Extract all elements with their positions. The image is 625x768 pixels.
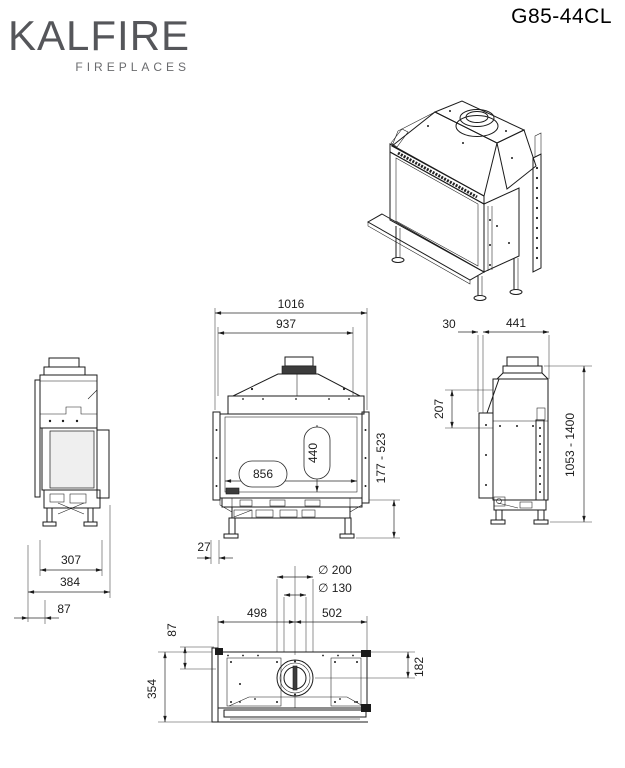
- technical-drawing: 307 384 87 1016 937: [0, 0, 625, 768]
- dim-body-depth: 441: [506, 316, 526, 330]
- dim-glass-height: 440: [306, 443, 320, 463]
- dim-frame-gap: 30: [442, 317, 456, 331]
- dim-overall-height: 1053 - 1400: [563, 413, 577, 477]
- dim-total-depth: 354: [145, 679, 159, 699]
- right-view-body: [493, 379, 548, 500]
- top-view: ∅ 200 ∅ 130 498 502: [145, 563, 426, 722]
- dim-glass-width: 856: [253, 467, 273, 481]
- drawing-sheet: { "header": { "brand": "KALFIRE", "brand…: [0, 0, 625, 768]
- dim-body-width: 937: [276, 317, 296, 331]
- dim-flue-left: 498: [247, 606, 267, 620]
- side-view-left: 307 384 87: [14, 358, 110, 624]
- dim-front-overhang: 87: [57, 602, 71, 616]
- dim-back-offset: 87: [165, 623, 179, 637]
- isometric-view: [368, 101, 541, 301]
- dim-hood-drop: 207: [432, 399, 446, 419]
- left-view-front-frame: [97, 430, 109, 498]
- dim-flue-inner-dia: ∅ 130: [318, 581, 352, 595]
- left-view-hood: [40, 375, 97, 428]
- side-view-right: 30 441 207: [432, 316, 592, 524]
- dim-flue-right: 502: [322, 606, 342, 620]
- dim-flue-center-offset: 182: [412, 657, 426, 677]
- dim-floor-clearance: 177 - 523: [374, 432, 388, 483]
- dim-flue-outer-dia: ∅ 200: [318, 563, 352, 577]
- front-view-body: [220, 414, 362, 498]
- front-view: 1016 937 856 440: [197, 297, 400, 564]
- dim-overall-depth: 384: [60, 575, 80, 589]
- dim-feet-spacing: 307: [61, 553, 81, 567]
- dim-frame-offset: 27: [197, 540, 211, 554]
- dim-overall-width: 1016: [278, 297, 305, 311]
